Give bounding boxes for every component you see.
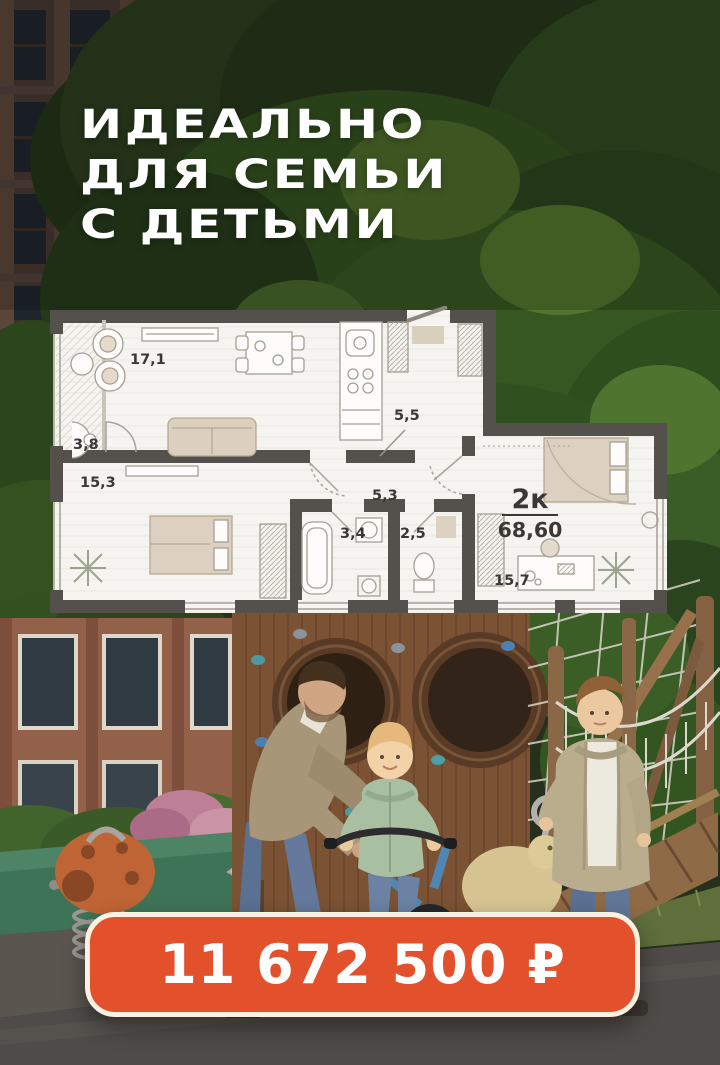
headline-line-1: ИДЕАЛЬНО — [80, 100, 448, 150]
room-label-bedroom: 15,3 — [80, 475, 116, 491]
floor-plan: 17,1 3,8 15,3 5,5 5,3 3,4 2,5 15,7 2к 68… — [50, 306, 672, 618]
room-label-wc: 2,5 — [400, 526, 426, 542]
headline-line-3: С ДЕТЬМИ — [80, 200, 448, 250]
room-label-entry: 5,5 — [394, 408, 420, 424]
room-label-bathroom: 3,4 — [340, 526, 366, 542]
room-label-living: 17,1 — [130, 352, 166, 368]
headline-line-2: ДЛЯ СЕМЬИ — [80, 150, 448, 200]
price-badge: 11 672 500 ₽ — [85, 912, 640, 1017]
plan-type-label: 2к — [511, 484, 548, 515]
room-label-corridor: 5,3 — [372, 488, 398, 504]
ad-creative: ИДЕАЛЬНО ДЛЯ СЕМЬИ С ДЕТЬМИ — [0, 0, 720, 1065]
price-value: 11 672 500 ₽ — [159, 933, 566, 996]
headline: ИДЕАЛЬНО ДЛЯ СЕМЬИ С ДЕТЬМИ — [80, 100, 448, 250]
room-label-room2: 15,7 — [494, 573, 530, 589]
plan-total-area: 68,60 — [498, 518, 563, 542]
room-label-balcony: 3,8 — [73, 437, 99, 453]
